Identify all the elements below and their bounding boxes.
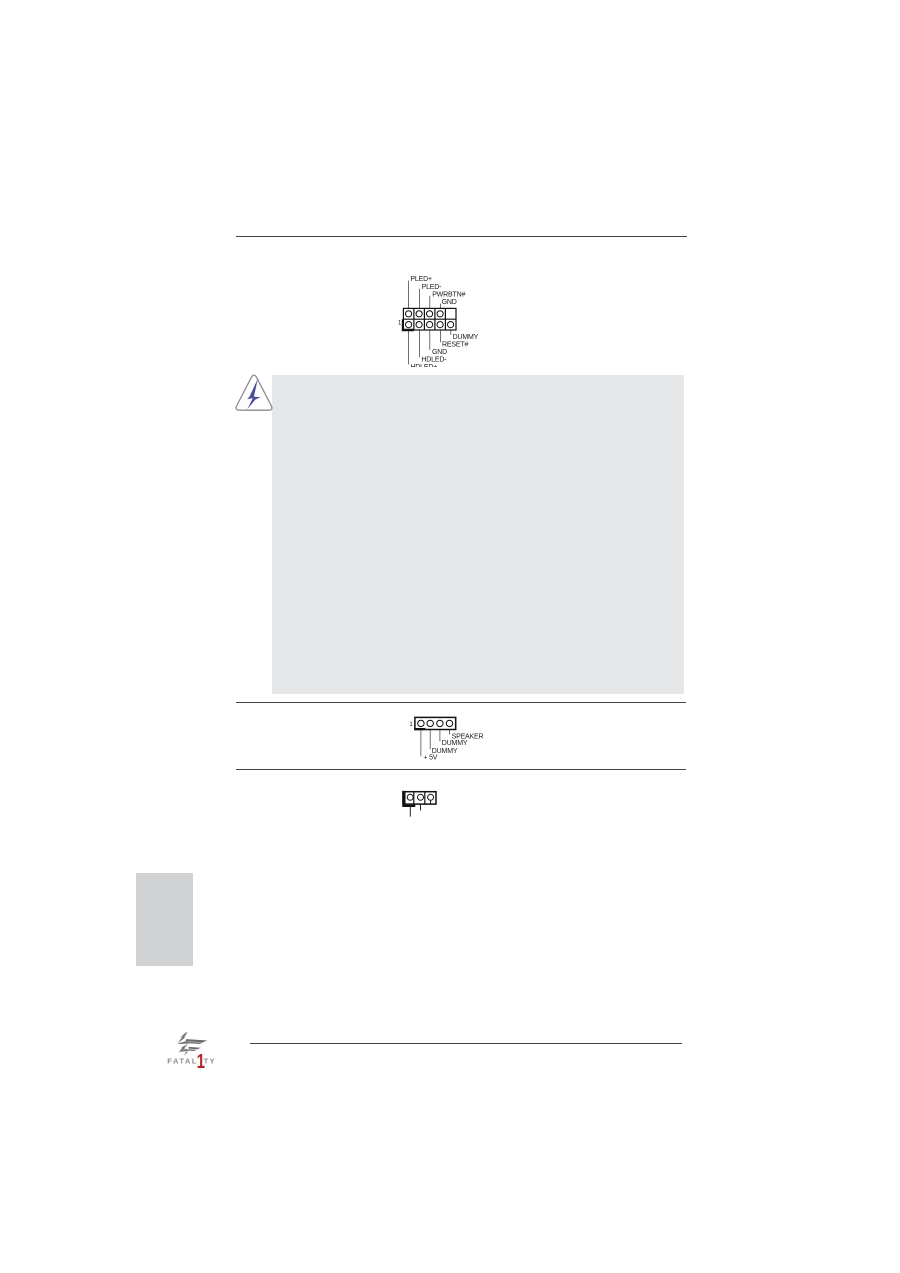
svg-text:DUMMY: DUMMY [442,740,468,747]
svg-text:PLED+: PLED+ [410,276,432,283]
svg-text:1: 1 [197,1050,205,1073]
svg-text:FATAL: FATAL [167,1056,198,1065]
svg-text:GND: GND [432,349,447,356]
svg-text:+ 5V: + 5V [423,754,437,761]
svg-text:TY: TY [204,1056,217,1065]
svg-text:DUMMY: DUMMY [453,334,479,341]
svg-text:GND: GND [442,299,457,306]
svg-text:RESET#: RESET# [442,342,468,349]
svg-text:HDLED-: HDLED- [421,356,447,363]
svg-text:PWRBTN#: PWRBTN# [432,291,465,298]
svg-text:1: 1 [409,722,413,728]
svg-text:HDLED+: HDLED+ [410,364,437,367]
svg-text:PLED-: PLED- [422,284,443,291]
svg-text:1: 1 [398,321,402,327]
